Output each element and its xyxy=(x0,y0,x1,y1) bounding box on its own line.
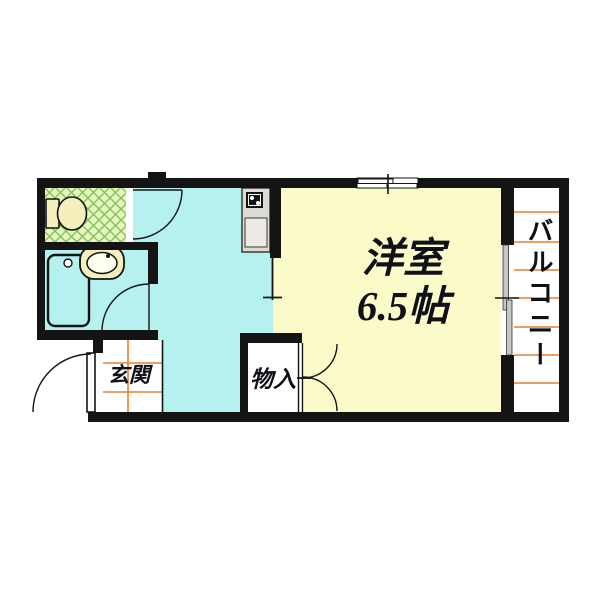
wall-top xyxy=(37,178,569,188)
wall-left xyxy=(37,178,45,340)
toilet-icon xyxy=(46,197,87,230)
entrance-label: 玄関 xyxy=(98,365,160,386)
toilet-doorway-gap xyxy=(126,188,133,242)
bathtub-drain-icon xyxy=(64,259,72,267)
wall-bath-bottom xyxy=(37,330,158,340)
floorplan-canvas: 洋室 6.5帖 バルコニー 玄関 物入 xyxy=(0,0,600,600)
kitchen-counter xyxy=(242,188,270,252)
wall-balcony-upper xyxy=(501,188,514,245)
western-room-size: 6.5帖 xyxy=(296,286,510,327)
wall-entrance-stub xyxy=(93,340,103,353)
western-room-label: 洋室 xyxy=(303,238,503,279)
wall-kitchen-room-divider xyxy=(270,178,281,258)
wall-right xyxy=(559,178,569,422)
washbasin-icon xyxy=(80,246,124,279)
wall-toilet-bottom xyxy=(37,242,158,250)
wall-storage-top xyxy=(240,333,302,343)
wall-balcony-lower xyxy=(501,355,514,412)
kitchen-sink-icon xyxy=(245,218,267,247)
toilet-room xyxy=(45,188,133,242)
balcony-label: バルコニー xyxy=(521,217,551,372)
storage-label: 物入 xyxy=(241,368,305,391)
wall-bottom xyxy=(88,412,569,422)
wall-bath-right xyxy=(148,250,158,284)
stove-icon xyxy=(246,192,263,208)
wall-pillar-tick xyxy=(148,172,166,178)
